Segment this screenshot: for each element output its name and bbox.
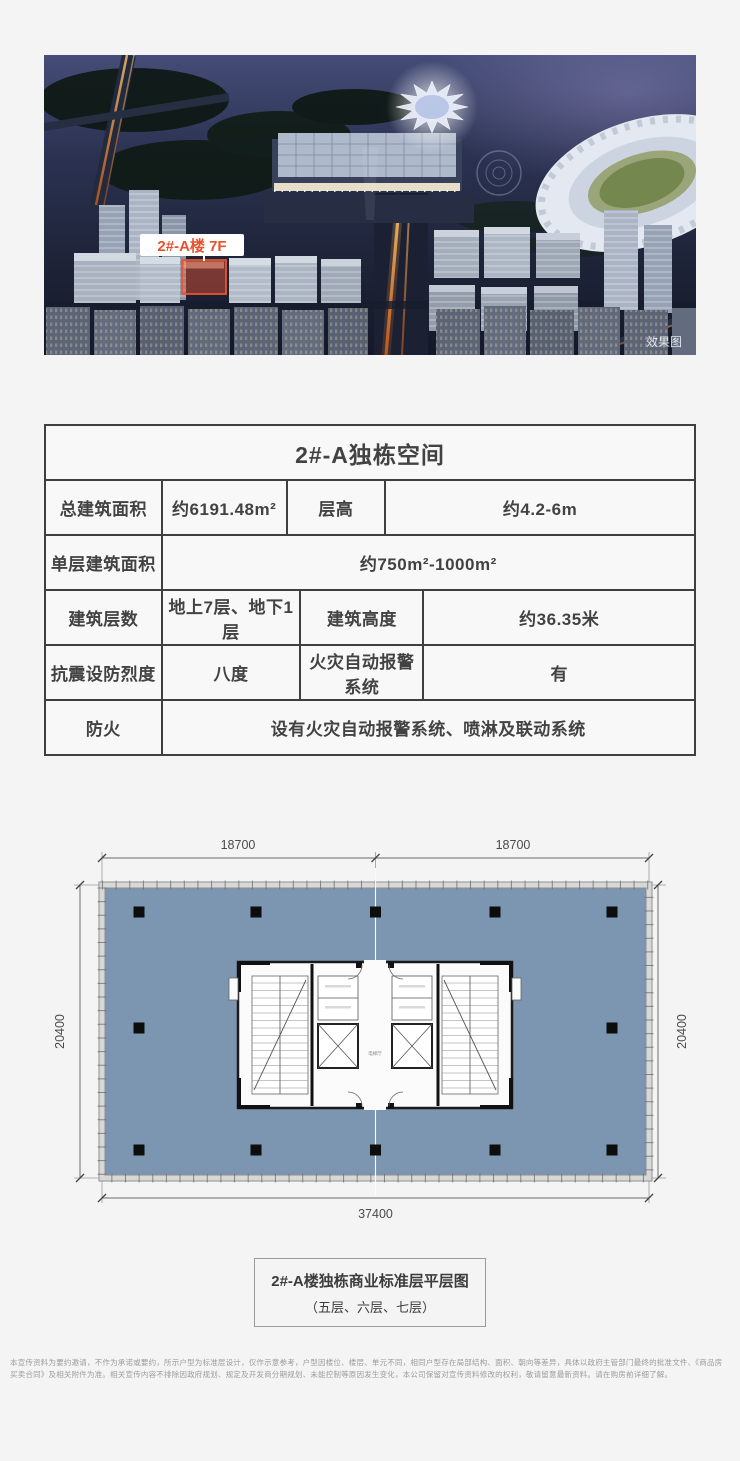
floor-plan-drawing: 18700 18700 20400 20400: [0, 828, 740, 1228]
dim-right-label: 20400: [675, 1014, 689, 1049]
building-label: 2#-A楼 7F: [157, 237, 226, 255]
crown-stadium: [386, 61, 478, 153]
spec-value: 八度: [163, 646, 302, 699]
spec-value: 设有火灾自动报警系统、喷淋及联动系统: [163, 701, 694, 754]
spec-label: 火灾自动报警系统: [301, 646, 424, 699]
floor-plan: 18700 18700 20400 20400: [0, 828, 740, 1228]
service-core: 电梯厅: [229, 960, 521, 1110]
dim-top-left-label: 18700: [221, 838, 256, 852]
spec-label: 单层建筑面积: [46, 536, 163, 589]
spec-value: 有: [424, 646, 694, 699]
highlighted-building: [182, 255, 226, 294]
hero-rendering: 2#-A楼 7F 效果图: [44, 55, 696, 355]
building-label-callout: 2#-A楼 7F: [140, 234, 244, 256]
spec-value: 地上7层、地下1层: [163, 591, 302, 644]
spec-value: 约6191.48m²: [163, 481, 288, 534]
spec-row: 抗震设防烈度 八度 火灾自动报警系统 有: [46, 646, 694, 701]
core-lobby-label: 电梯厅: [368, 1050, 382, 1057]
spec-value: 约36.35米: [424, 591, 694, 644]
dim-top-right-label: 18700: [496, 838, 531, 852]
spec-label: 建筑层数: [46, 591, 163, 644]
spec-label: 层高: [288, 481, 386, 534]
spec-label: 抗震设防烈度: [46, 646, 163, 699]
spec-label: 防火: [46, 701, 163, 754]
spec-label: 建筑高度: [301, 591, 424, 644]
dim-left-label: 20400: [53, 1014, 67, 1049]
plan-caption-title: 2#-A楼独栋商业标准层平层图: [261, 1270, 479, 1291]
spec-row: 单层建筑面积 约750m²-1000m²: [46, 536, 694, 591]
spec-row: 总建筑面积 约6191.48m² 层高 约4.2-6m: [46, 481, 694, 536]
dim-bottom-label: 37400: [358, 1207, 393, 1221]
spec-value: 约750m²-1000m²: [163, 536, 694, 589]
spec-table-title: 2#-A独栋空间: [46, 426, 694, 481]
disclaimer-text: 本宣传资料为要约邀请，不作为承诺或要约，所示户型为标准层设计，仅作示意参考，户型…: [10, 1357, 730, 1382]
dimension-right: [651, 881, 666, 1182]
spec-table: 2#-A独栋空间 总建筑面积 约6191.48m² 层高 约4.2-6m 单层建…: [44, 424, 696, 756]
plan-caption-subtitle: （五层、六层、七层）: [261, 1297, 479, 1316]
spec-row: 建筑层数 地上7层、地下1层 建筑高度 约36.35米: [46, 591, 694, 646]
spec-value: 约4.2-6m: [386, 481, 694, 534]
dimension-left: [74, 881, 100, 1182]
brochure-page: 2#-A楼 7F 效果图 2#-A独栋空间 总建筑面积 约6191.48m² 层…: [0, 55, 740, 1461]
plan-caption: 2#-A楼独栋商业标准层平层图 （五层、六层、七层）: [254, 1258, 486, 1327]
spec-label: 总建筑面积: [46, 481, 163, 534]
watermark-label: 效果图: [646, 334, 682, 349]
hero-scene: 2#-A楼 7F 效果图: [44, 55, 696, 355]
spec-row: 防火 设有火灾自动报警系统、喷淋及联动系统: [46, 701, 694, 754]
